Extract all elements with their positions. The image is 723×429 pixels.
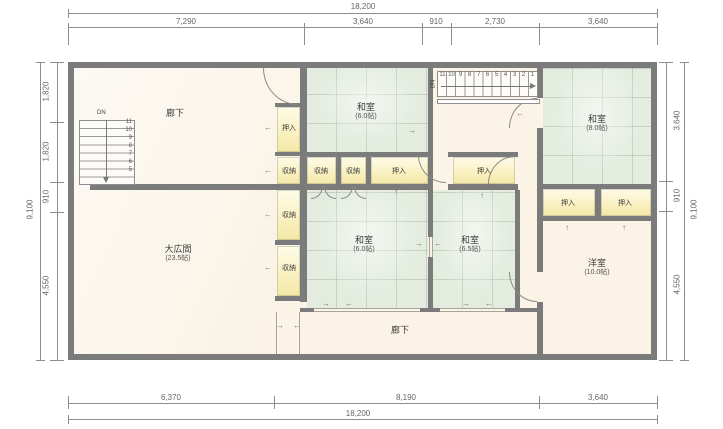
dim-tick xyxy=(304,23,305,45)
wall-segment xyxy=(428,62,433,157)
dim-tick xyxy=(657,415,658,424)
stair-step-number: 3 xyxy=(510,72,519,79)
room-label-washitsu-mid-left: 和室 (6.0帖) xyxy=(353,235,374,255)
stair-step-number: 11 xyxy=(120,119,132,126)
room-label-western-room: 洋室 (10.0帖) xyxy=(584,258,609,278)
arrow-left-icon: ← xyxy=(264,211,272,219)
arrow-up-icon: ↑ xyxy=(480,192,484,200)
stair-step-number: 8 xyxy=(465,72,474,79)
arrow-left-icon: ← xyxy=(264,167,272,175)
dim-bottom-total-line xyxy=(68,419,657,420)
arrow-up-icon: ↑ xyxy=(565,224,569,232)
wall-segment xyxy=(300,308,314,312)
dim-tick xyxy=(36,360,45,361)
stair-step-number: 9 xyxy=(456,72,465,79)
dim-right-total-line xyxy=(684,62,685,360)
dim-tick xyxy=(50,62,64,63)
dim-tick xyxy=(50,182,64,183)
sliding-door-track xyxy=(432,237,433,257)
closet-label: 押入 xyxy=(477,166,491,176)
arrow-left-icon: ← xyxy=(264,264,272,272)
sliding-door-track xyxy=(299,312,300,354)
stair-step-number: 1 xyxy=(528,72,537,79)
dim-tick xyxy=(422,23,423,45)
arrow-up-icon: ↑ xyxy=(394,188,398,196)
dim-top-seg-label: 3,640 xyxy=(353,17,373,26)
dim-tick xyxy=(50,360,64,361)
stair-step-number: 10 xyxy=(447,72,456,79)
arrow-right-icon: → xyxy=(276,322,284,330)
dim-right-seg-label: 3,640 xyxy=(673,103,682,139)
dim-top-seg-label: 3,640 xyxy=(588,17,608,26)
arrow-right-icon: → xyxy=(415,240,423,248)
stair-direction-line xyxy=(106,120,107,177)
dim-tick xyxy=(657,23,658,45)
arrow-left-icon: ← xyxy=(485,300,493,308)
wall-segment xyxy=(275,152,300,156)
dim-top-seg-label: 910 xyxy=(429,17,442,26)
stair-landing-edge xyxy=(437,99,540,104)
closet-label: 収納 xyxy=(346,166,360,176)
arrow-right-icon xyxy=(530,83,536,89)
closet-label: 押入 xyxy=(282,123,296,133)
arrow-left-icon: ← xyxy=(434,240,442,248)
stair-step-number: 7 xyxy=(474,72,483,79)
floor-plan-canvas: 18,200 7,290 3,640 910 2,730 3,640 6,370… xyxy=(0,0,723,429)
closet-label: 収納 xyxy=(282,166,296,176)
wall-segment xyxy=(448,184,518,190)
dim-bottom-seg-label: 3,640 xyxy=(588,393,608,402)
arrow-down-icon xyxy=(103,177,109,183)
wall-segment xyxy=(428,257,433,310)
stair-direction-line xyxy=(441,86,530,87)
closet-label: 収納 xyxy=(314,166,328,176)
dim-tick xyxy=(50,122,64,123)
room-label-washitsu-top-right: 和室 (8.0帖) xyxy=(586,114,607,134)
dim-left-seg-label: 4,550 xyxy=(42,268,51,304)
sliding-door-track xyxy=(314,308,420,309)
dim-top-seg-label: 2,730 xyxy=(485,17,505,26)
dim-tick xyxy=(539,396,540,409)
wall-segment xyxy=(420,308,440,312)
room-label-corridor-bottom: 廊下 xyxy=(391,325,409,335)
dim-tick xyxy=(657,396,658,409)
dim-tick xyxy=(657,9,658,18)
dim-tick xyxy=(659,181,673,182)
stair-step-number: 8 xyxy=(120,143,132,150)
dim-tick xyxy=(36,62,45,63)
dim-left-seg-line xyxy=(57,62,58,360)
dim-left-seg-label: 1,820 xyxy=(42,134,51,170)
closet-label: 押入 xyxy=(618,198,632,208)
room-label-corridor-top: 廊下 xyxy=(166,108,184,118)
dim-tick xyxy=(68,23,69,45)
dim-tick xyxy=(539,23,540,45)
dim-tick xyxy=(680,62,689,63)
wall-segment xyxy=(543,216,651,221)
stair-step-number: 4 xyxy=(501,72,510,79)
dim-left-total-label: 9,100 xyxy=(26,192,35,228)
closet-label: 収納 xyxy=(282,210,296,220)
arrow-left-icon: ← xyxy=(264,124,272,132)
dim-tick xyxy=(680,360,689,361)
dim-left-seg-label: 910 xyxy=(42,179,51,215)
dim-tick xyxy=(68,396,69,409)
room-label-washitsu-mid-right: 和室 (6.5帖) xyxy=(459,235,480,255)
dim-tick xyxy=(659,360,673,361)
stair-dn-label: DN xyxy=(97,110,106,116)
dim-top-total-label: 18,200 xyxy=(351,2,375,11)
dim-tick xyxy=(274,396,275,409)
stair-step-number: 6 xyxy=(483,72,492,79)
dim-tick xyxy=(451,23,452,45)
closet-label: 押入 xyxy=(561,198,575,208)
room-label-washitsu-top: 和室 (6.0帖) xyxy=(355,102,376,122)
dim-tick xyxy=(659,62,673,63)
stair-step-number: 9 xyxy=(120,135,132,142)
wall-segment xyxy=(275,296,300,301)
sliding-door-track xyxy=(314,311,420,312)
arrow-right-icon: → xyxy=(408,127,416,135)
stair-step-number: 5 xyxy=(120,167,132,174)
dim-tick xyxy=(68,415,69,424)
wall-segment xyxy=(505,308,543,312)
dim-right-seg-label: 4,550 xyxy=(673,267,682,303)
closet-label: 収納 xyxy=(282,263,296,273)
arrow-right-icon: → xyxy=(322,300,330,308)
stair-step-number: 2 xyxy=(519,72,528,79)
dim-tick xyxy=(68,9,69,18)
room-label-great-hall: 大広間 (23.5帖) xyxy=(164,244,191,264)
dim-bottom-seg-label: 6,370 xyxy=(161,393,181,402)
arrow-right-icon: → xyxy=(462,300,470,308)
dim-top-seg-label: 7,290 xyxy=(176,17,196,26)
sliding-door-track xyxy=(440,308,505,309)
dim-top-total-line xyxy=(68,13,657,14)
wall-segment xyxy=(275,240,300,245)
dim-bottom-seg-label: 8,190 xyxy=(396,393,416,402)
stair-step-number: 11 xyxy=(438,72,447,79)
sliding-door-track xyxy=(429,237,430,257)
stair-step-number: 5 xyxy=(492,72,501,79)
dim-left-seg-label: 1,820 xyxy=(42,74,51,110)
dim-tick xyxy=(659,211,673,212)
closet-label: 押入 xyxy=(392,166,406,176)
arrow-left-icon: ← xyxy=(293,322,301,330)
sliding-door-track xyxy=(276,312,277,354)
dim-right-seg-label: 910 xyxy=(673,178,682,214)
dim-bottom-seg-line xyxy=(68,403,657,404)
arrow-up-icon: ↑ xyxy=(622,224,626,232)
dim-right-total-label: 9,100 xyxy=(690,192,699,228)
stair-step-number: 6 xyxy=(120,159,132,166)
sliding-door-track xyxy=(440,311,505,312)
arrow-left-icon: ← xyxy=(516,110,524,118)
wall-segment xyxy=(90,184,433,190)
arrow-left-icon: ← xyxy=(345,300,353,308)
dim-bottom-total-label: 18,200 xyxy=(346,409,370,418)
stair-dn-label: DN xyxy=(430,80,436,89)
arrow-left-icon: ← xyxy=(514,284,522,292)
wall-segment xyxy=(300,62,307,302)
stair-step-number: 10 xyxy=(120,127,132,134)
dim-top-seg-line xyxy=(68,27,657,28)
dim-tick xyxy=(50,212,64,213)
stair-step-number: 7 xyxy=(120,151,132,158)
